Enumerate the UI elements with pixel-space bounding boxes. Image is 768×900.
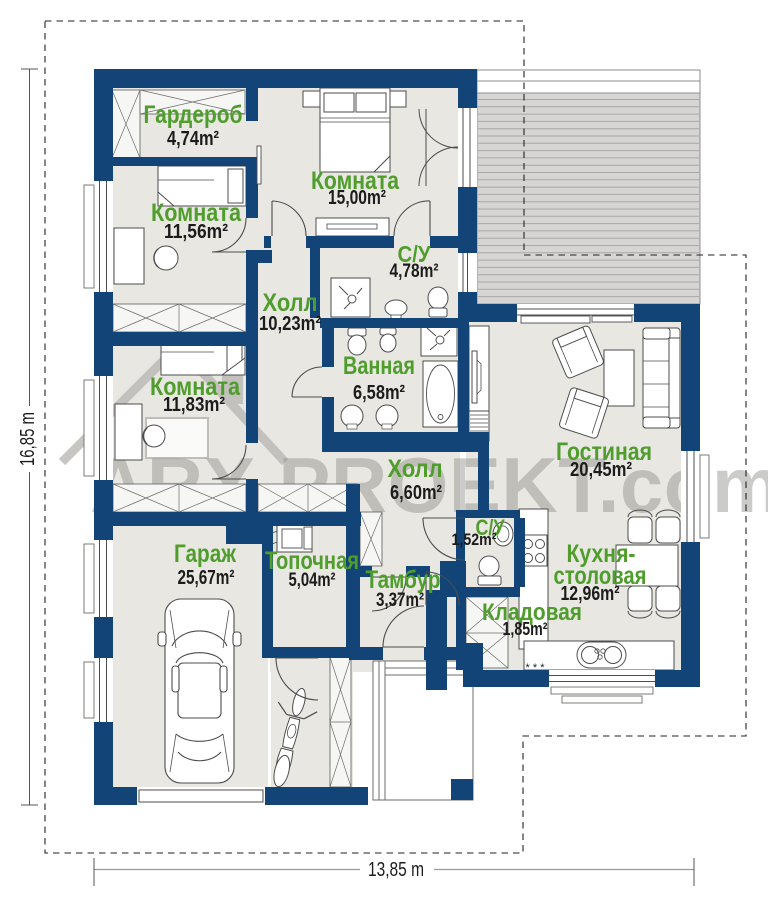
svg-text:6,60m²: 6,60m² — [390, 482, 442, 504]
svg-text:4,78m²: 4,78m² — [390, 261, 439, 282]
svg-text:25,67m²: 25,67m² — [178, 567, 235, 589]
svg-text:Ванная: Ванная — [343, 352, 415, 380]
svg-text:Гараж: Гараж — [174, 540, 236, 568]
svg-text:15,00m²: 15,00m² — [328, 187, 386, 209]
svg-text:Гардероб: Гардероб — [144, 101, 243, 129]
svg-text:1,52m²: 1,52m² — [452, 530, 497, 549]
svg-text:Холл: Холл — [388, 455, 443, 483]
svg-text:13,85 m: 13,85 m — [368, 859, 424, 881]
svg-text:3,37m²: 3,37m² — [376, 590, 424, 611]
svg-text:5,04m²: 5,04m² — [289, 570, 336, 591]
svg-text:1,85m²: 1,85m² — [503, 619, 548, 639]
svg-text:11,83m²: 11,83m² — [163, 394, 225, 416]
svg-text:11,56m²: 11,56m² — [164, 221, 228, 243]
svg-text:4,74m²: 4,74m² — [167, 128, 219, 150]
svg-text:16,85 m: 16,85 m — [17, 412, 39, 466]
svg-text:10,23m²: 10,23m² — [259, 313, 321, 335]
svg-text:* * *: * * * — [526, 662, 546, 674]
svg-text:6,58m²: 6,58m² — [353, 382, 405, 404]
svg-text:20,45m²: 20,45m² — [570, 459, 632, 481]
